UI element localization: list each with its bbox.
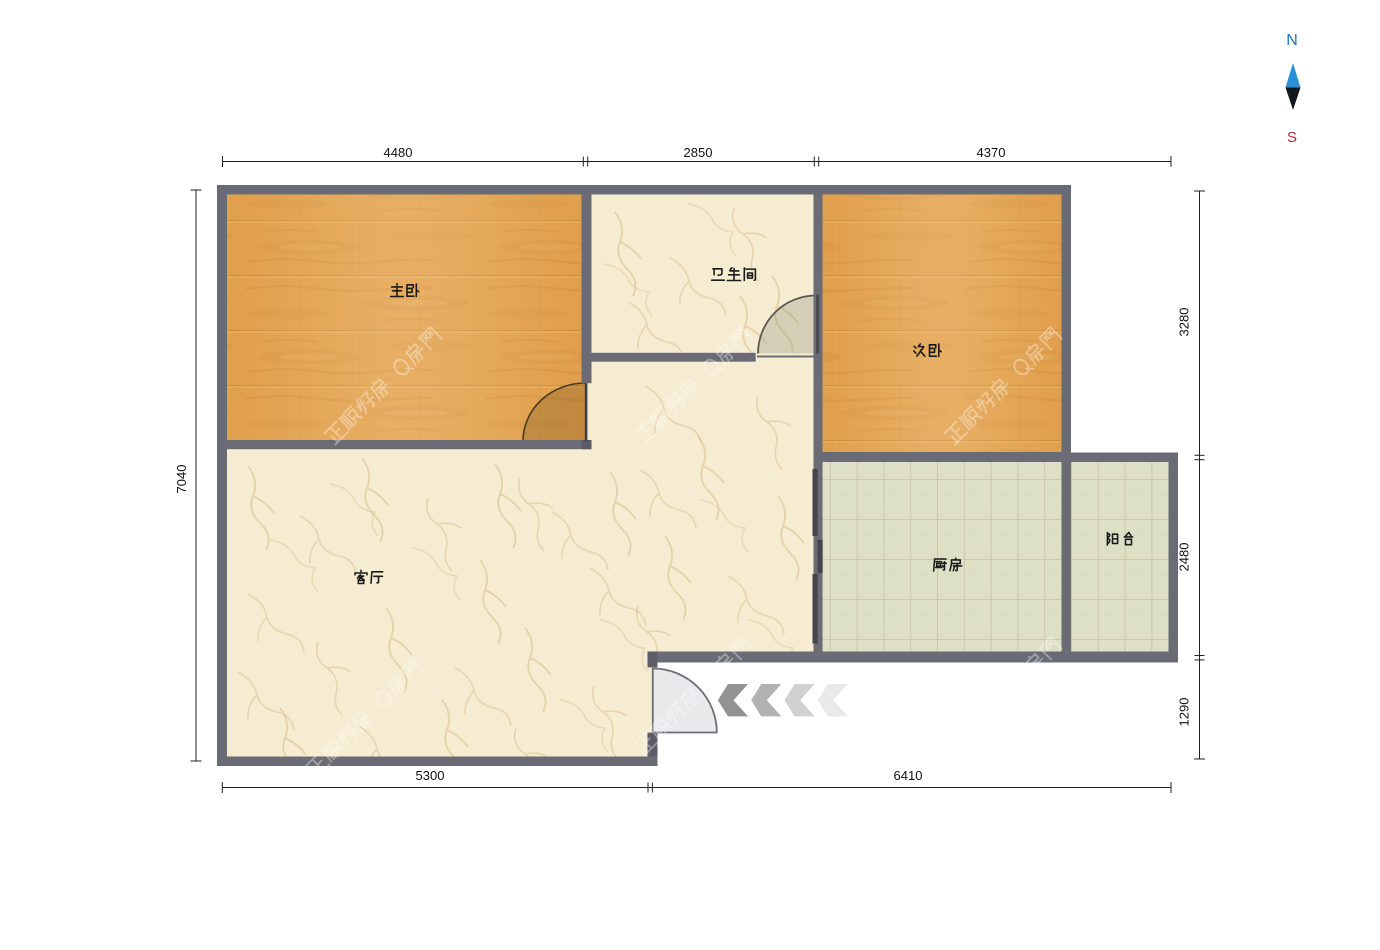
svg-text:6410: 6410 — [894, 768, 923, 783]
svg-text:2480: 2480 — [1177, 543, 1192, 572]
svg-text:4370: 4370 — [977, 145, 1006, 160]
svg-text:7040: 7040 — [174, 465, 189, 494]
svg-text:4480: 4480 — [384, 145, 413, 160]
svg-text:2850: 2850 — [684, 145, 713, 160]
svg-text:3280: 3280 — [1177, 308, 1192, 337]
svg-text:5300: 5300 — [416, 768, 445, 783]
svg-text:S: S — [1287, 129, 1297, 146]
svg-text:1290: 1290 — [1177, 698, 1192, 727]
svg-text:N: N — [1286, 32, 1298, 49]
